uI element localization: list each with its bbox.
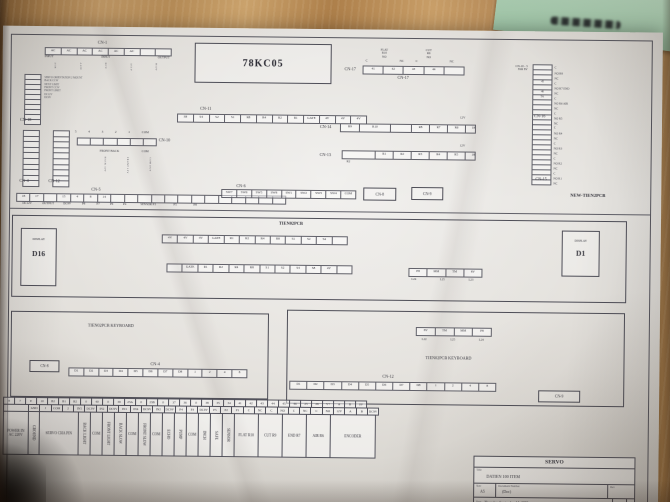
pin-cell	[337, 266, 351, 273]
pin-cell: S1	[260, 265, 275, 272]
pin-cell: COM	[341, 191, 355, 198]
pin-cell	[391, 125, 412, 132]
terminal-function-cell: AIR R6	[305, 414, 330, 458]
terminal-function-cell: ENCODER	[329, 414, 375, 458]
pin-cell: 42	[384, 67, 404, 74]
pin-cell: 4	[218, 370, 233, 377]
desk-photo: CN-1 ACACACACACAC INPUTINPUTOUTPUT ACBA1…	[0, 0, 670, 502]
cn8-box-label: CN-8	[376, 192, 384, 196]
pin-cell: AC	[124, 49, 140, 55]
size-label: Size	[476, 485, 481, 488]
lamp-tags: L24L25L23	[411, 278, 473, 282]
relay-pin-label: NC	[554, 151, 558, 155]
cn6-row: SW7SW6SW5SW8SW1SW2SW3SW4COM	[221, 189, 356, 199]
marker-smudge	[550, 16, 620, 29]
cn8-kb-box: CN-8	[29, 360, 59, 372]
terminal-function-cell: POWER IN AC 220V	[3, 411, 29, 455]
docnum-cell: Document Number (Doc)	[496, 484, 608, 498]
relay-pin-label: NO R1	[553, 176, 561, 180]
pin-cell: D7	[158, 369, 173, 376]
pin-cell: S2	[210, 115, 226, 122]
cn5-tag: DC12V	[16, 202, 38, 206]
pin-cell: R8	[241, 115, 257, 122]
cn13-sub-label: R2	[347, 160, 351, 163]
cn5-tags: DC12VOUTPUTDC9VP8P7P6P4SENSOR P3P5P8	[16, 202, 205, 207]
pin-cell: D4	[342, 382, 359, 389]
cn12-kb-label: CN-12	[382, 375, 393, 380]
cn4-kb-label: CN-4	[150, 362, 159, 367]
pin-cell	[125, 195, 139, 202]
pin-cell: S4	[317, 237, 332, 244]
board-name: NEW-TIEN2PCB	[570, 193, 605, 198]
relay-pin-label: C	[555, 65, 557, 69]
pin-cell: 4V	[322, 266, 337, 273]
keyboard-right-section: 8VTMMMP8 L22L25L24 TIEN02PCB KEYBOARD CN…	[286, 310, 625, 408]
cn15-label: CN-15	[535, 177, 546, 182]
display-d16-box: DISPLAY D16	[20, 228, 57, 286]
contact-c-label: C	[366, 59, 368, 62]
pin-cell: 17	[31, 194, 45, 201]
pin-cell: 8	[232, 370, 246, 377]
relay-pin-label: NO R6 AIR	[554, 101, 568, 105]
pin-cell: 18	[466, 153, 481, 160]
cn11-label: CN-11	[200, 107, 211, 112]
cn10-pin-numbers: 54321COM	[75, 129, 149, 134]
pin-cell	[332, 237, 346, 244]
title-block: SERVO Title DATIEN 100 ITEM Size A5 Docu…	[473, 456, 636, 502]
pin-cell: 2	[445, 383, 462, 390]
pin-cell: 4V	[335, 116, 351, 123]
cn8-connector-box: CN-8	[363, 187, 396, 200]
display-label: DISPLAY	[22, 237, 56, 241]
display-d1-box: DISPLAY D1	[561, 231, 599, 277]
pin-cell: R8	[412, 125, 430, 132]
pcb-title: TIEN02PCB	[279, 222, 303, 227]
section-divider	[10, 208, 650, 216]
pin-cell	[144, 139, 156, 145]
pin-cell: 8V	[464, 270, 481, 277]
pin-cell: D4	[114, 369, 129, 376]
pin-cell: D8	[410, 383, 427, 390]
pin-cell: SW3	[312, 191, 327, 198]
keyboard-title: TIEN02PCB KEYBOARD	[88, 324, 134, 329]
pin-cell	[117, 139, 130, 145]
cut-relay-label: CUTR6NO	[426, 49, 432, 59]
cn13-label: CN-13	[320, 153, 331, 158]
cn17-label-left: CN-17	[345, 67, 356, 72]
pin-cell: P8	[473, 329, 491, 336]
display-row-b: GATER1R2R4R8S1S2S4S84V	[166, 263, 352, 274]
cn11-row: S8S4S2S1R8R4R2R1GATE4V4V4V	[177, 114, 367, 125]
pin-cell: SW5	[252, 190, 267, 197]
pin-cell: R9	[341, 124, 360, 131]
front-back-wires: BACK 12VFRONT 12VCOM OUT	[103, 157, 151, 184]
pin-cell: AC	[77, 48, 93, 54]
pin-number: 4	[88, 130, 90, 134]
cn13-row: R1R2R3R4R518	[342, 150, 476, 160]
chip-box: 78KC05	[194, 43, 331, 84]
lamp-tag: L25	[440, 278, 445, 281]
relay-pin-label: C	[554, 81, 556, 85]
cn9-kb-box: CN-9	[538, 390, 580, 402]
pin-cell: R1	[198, 265, 213, 272]
pin-cell: R4	[430, 152, 448, 159]
cn12-table-label: CN-12	[48, 179, 59, 184]
pin-cell: 4V	[194, 236, 209, 243]
cn6-label: CN-6	[236, 184, 245, 189]
wire-pin-text: BACK 12V	[103, 157, 106, 183]
pin-cell	[444, 67, 463, 74]
pin-cell: TM	[446, 269, 464, 276]
display-row-a: 4V4V4VGATER1R2R4R8S1S2S4	[162, 234, 348, 245]
pin-cell: SW2	[297, 191, 312, 198]
pin-cell: 8	[479, 384, 495, 391]
pin-cell	[130, 139, 143, 145]
lamp-tag: L22	[422, 338, 427, 341]
pin-cell: GATE	[304, 116, 320, 123]
cn5-tag: P5	[165, 203, 185, 207]
pin-cell	[165, 195, 179, 202]
ssr-ref-label: CN-10 - 3SSR 8V	[496, 65, 528, 72]
relay-pin-label: C	[554, 156, 556, 160]
cn1-group-label: OUTPUT	[158, 56, 170, 60]
cn18-label: CN-18	[20, 118, 31, 123]
pin-cell: S4	[194, 115, 210, 122]
pin-cell: R1	[376, 152, 394, 159]
relay-pin-label: C	[554, 125, 556, 129]
pin-cell: R4	[255, 236, 270, 243]
pin-cell: 44	[424, 67, 444, 74]
pin-cell: 15	[58, 194, 72, 201]
pin-cell: D8	[173, 369, 188, 376]
title-label: Title	[476, 469, 481, 472]
note-line: DC9V	[44, 96, 82, 100]
pin-cell: D5	[129, 369, 144, 376]
pin-cell: 8	[84, 195, 98, 202]
pin-cell: SW4	[326, 191, 341, 198]
cn1-label: CN-1	[98, 41, 107, 46]
pin-cell: S1	[286, 237, 301, 244]
pin-cell: 18	[466, 126, 481, 133]
pin-cell: D6	[376, 383, 393, 390]
terminal-functions-row: POWER IN AC 220VGROUNDSERVO CHA PINBACK …	[4, 411, 404, 459]
lamp-tag: L25	[450, 338, 455, 341]
pin-cell: R5	[448, 152, 466, 159]
pin-cell	[343, 151, 376, 158]
cn10-row	[77, 137, 157, 146]
pin-cell	[104, 139, 117, 145]
terminal-function-cell: SERVO CHA PIN	[39, 411, 79, 455]
cn12-kb-row: D1D2D3D4D5D6D7D81248	[289, 381, 496, 392]
relay-pin-label: NC	[554, 91, 558, 95]
cn14-row: R9R10R8R7R618	[340, 123, 476, 133]
wire-pin-text: AC1V	[129, 63, 132, 85]
pin-number: COM	[142, 130, 149, 134]
pin-cell: D7	[393, 383, 410, 390]
pin-cell: R6	[448, 125, 466, 132]
terminal-function-cell: END R7	[281, 414, 306, 458]
pin-cell: D5	[359, 382, 376, 389]
pin-cell: R2	[273, 116, 289, 123]
pin-cell: R10	[360, 124, 391, 131]
relay-pin-label: NO R8	[555, 71, 563, 75]
relay-pin-label: NC	[554, 76, 558, 80]
rev-cell: Rev	[608, 485, 634, 498]
rev-label: Rev	[610, 486, 615, 489]
pin-cell: R2	[394, 152, 412, 159]
lamp-tag: L24	[479, 339, 484, 342]
pin-cell: MM	[454, 328, 473, 335]
pin-cell: R2	[214, 265, 229, 272]
terminal-table: 87E10B2B1B204003923A023B0373603835344142…	[4, 397, 405, 459]
relay-pin-label: NC	[554, 136, 558, 140]
contact-nc-label: NC	[400, 60, 404, 63]
display-id: D1	[563, 249, 599, 258]
cn4-kb-row: D1D2D3D4D5D6D7D81248	[68, 367, 247, 378]
cn1-group-label: INPUT	[45, 55, 54, 59]
cn17-label-below: CN-17	[397, 76, 408, 81]
cn1-group-labels: INPUTINPUTOUTPUT	[45, 55, 170, 60]
size-cell: Size A5	[474, 484, 496, 497]
cn4-table-label: CN-4	[19, 179, 28, 184]
wire-pin-text: BCV	[104, 63, 107, 85]
cn14-voltage-label: 12V	[460, 116, 465, 119]
pin-cell: S8	[306, 266, 321, 273]
relay-pin-label: C	[553, 171, 555, 175]
size-value: A5	[480, 490, 485, 494]
keyboard-title: TIEN02PCB KEYBOARD	[426, 356, 472, 361]
pin-cell: P8	[409, 269, 427, 276]
pin-cell: 4	[462, 384, 479, 391]
relay-pin-label: NC	[553, 181, 557, 185]
wire-pin-text: FRONT 12V	[126, 157, 129, 183]
docnum-label: Document Number	[498, 485, 520, 488]
pin-cell: S8	[178, 115, 194, 122]
cn5-tag: DC9V	[58, 202, 76, 206]
pin-cell: R3	[412, 152, 430, 159]
display-label: DISPLAY	[563, 239, 599, 243]
cn5-tag: OUTPUT	[38, 202, 58, 206]
label-line: NO	[426, 56, 432, 60]
flat-relay-label: FLATR10NO	[381, 49, 388, 59]
pin-cell: 4V	[163, 235, 178, 242]
pin-cell: 1	[188, 370, 203, 377]
cn5-tag: SENSOR P3	[131, 203, 165, 207]
cn5-tag: P4	[118, 203, 131, 207]
relay-pin-label: NC	[554, 166, 558, 170]
pin-cell	[206, 196, 220, 203]
drawing-frame: CN-1 ACACACACACAC INPUTINPUTOUTPUT ACBA1…	[6, 34, 653, 502]
cn1-group-label: INPUT	[101, 56, 110, 60]
pin-cell: SW6	[237, 190, 252, 197]
relay-pin-label: NC	[554, 106, 558, 110]
pin-cell: R8	[245, 265, 260, 272]
pin-cell: R7	[430, 125, 448, 132]
pin-cell: D3	[325, 382, 342, 389]
pin-cell: 43	[404, 67, 424, 74]
pin-cell: 4	[71, 194, 85, 201]
pin-cell: D6	[143, 369, 158, 376]
cn8-kb-label: CN-8	[40, 364, 48, 368]
lamp-tag: L24	[411, 278, 416, 281]
pin-cell	[91, 139, 104, 145]
relay-pin-label: NO R5	[554, 116, 562, 120]
title-block-title-row: Title DATIEN 100 ITEM	[474, 468, 634, 486]
pin-cell: 2	[203, 370, 218, 377]
pin-cell: R8	[271, 237, 286, 244]
lamp-tags: L22L25L24	[422, 338, 484, 342]
pin-number: 5	[75, 129, 77, 133]
relay-pin-label: NO R4	[554, 131, 562, 135]
wire-pin-text: B12V	[154, 63, 157, 85]
keyboard-left-section: TIEN02PCB KEYBOARD CN-8 CN-4 D1D2D3D4D5D…	[10, 311, 269, 400]
pin-cell: D3	[99, 369, 114, 376]
cn9-kb-label: CN-9	[555, 394, 563, 398]
cn9-connector-box: CN-9	[411, 187, 443, 200]
relay-pin-label: C	[554, 141, 556, 145]
pin-cell: 41	[364, 66, 384, 73]
com-label: COM	[142, 150, 149, 153]
title-block-date-row: Date Thursday, September 14, 2000 Sheet …	[474, 498, 634, 502]
contact-c-label: C	[416, 60, 418, 63]
drawing-title: DATIEN 100 ITEM	[486, 474, 520, 479]
pin-cell: GATE	[209, 236, 224, 243]
pin-cell: 1	[428, 383, 445, 390]
cn17-row: 41424344	[363, 65, 465, 75]
cn5-tag: P8	[76, 202, 91, 206]
pin-cell: R4	[229, 265, 244, 272]
pin-cell: S2	[275, 266, 290, 273]
lamp-tag: L23	[468, 279, 473, 282]
tien02pcb-section: TIEN02PCB DISPLAY D16 4V4V4VGATER1R2R4R8…	[11, 215, 627, 303]
label-line: SSR 8V	[496, 68, 528, 72]
display-id: D16	[22, 249, 56, 258]
schematic-paper: CN-1 ACACACACACAC INPUTINPUTOUTPUT ACBA1…	[0, 26, 663, 502]
docnum-value: (Doc)	[502, 490, 511, 494]
pin-cell: D2	[307, 382, 324, 389]
relay-pin-label: C	[554, 111, 556, 115]
front-back-label: FRONT BACK	[100, 150, 120, 154]
mini-row: 8VTMMMP8	[416, 327, 492, 337]
label-line: NO	[381, 56, 388, 60]
relay-pin-label: NO R3	[554, 146, 562, 150]
terminal-function-cell: CUT R9	[257, 413, 282, 457]
cn13-voltage-label: 12V	[460, 144, 465, 147]
pin-cell: S4	[291, 266, 306, 273]
cn16-label: CN-16	[534, 114, 545, 119]
pin-number: 3	[102, 130, 104, 134]
pin-cell	[111, 195, 125, 202]
pin-cell	[140, 49, 156, 55]
pin-cell: D2	[84, 369, 99, 376]
pin-cell	[78, 138, 91, 144]
cn9-box-label: CN-9	[423, 192, 431, 196]
cn5-tag: P8	[185, 204, 205, 208]
pin-cell: D1	[69, 368, 84, 375]
mini-row: P8MMTM8V	[408, 268, 482, 278]
pin-number: 1	[128, 130, 130, 134]
pin-cell: R1	[224, 236, 239, 243]
pin-cell: S1	[225, 115, 241, 122]
cn5-tag: P7	[91, 203, 105, 207]
pin-cell: 4V	[178, 236, 193, 243]
cn5-tag: P6	[105, 203, 118, 207]
pin-cell: 4V	[320, 116, 336, 123]
pin-cell: 8V	[417, 328, 436, 335]
pin-cell: SW7	[222, 190, 237, 197]
pin-cell: R2	[240, 236, 255, 243]
relay-pin-label: NO R2	[554, 161, 562, 165]
pin-number: 2	[115, 130, 117, 134]
wire-pin-text: COM OUT	[148, 157, 151, 183]
pin-cell: R1	[288, 116, 304, 123]
pin-cell: AC	[109, 49, 125, 55]
pin-cell: TM	[436, 328, 455, 335]
pin-cell: SW8	[267, 190, 282, 197]
relay-pin-label: C	[554, 96, 556, 100]
pin-cell: R4	[257, 115, 273, 122]
cn18-notes: SERVO ORIENTATION 2 MOUNTBACK CCWNEXT LI…	[44, 76, 82, 100]
terminal-function-cell: FLAT R10	[233, 413, 258, 457]
pin-cell: MM	[428, 269, 446, 276]
pin-cell	[179, 196, 193, 203]
relay-pin-label: NO R7 END	[554, 86, 569, 90]
cn10-label: CN-10	[159, 138, 170, 143]
pin-cell: D1	[290, 382, 307, 389]
pin-cell: GATE	[183, 265, 198, 272]
pin-cell	[167, 264, 182, 271]
chip-title: 78KC05	[243, 58, 284, 69]
pin-cell: AC	[61, 48, 77, 54]
cn5-label: CN-5	[91, 188, 100, 193]
pin-cell: SW1	[282, 191, 297, 198]
pin-cell: S2	[302, 237, 317, 244]
pin-cell: 18	[17, 194, 31, 201]
cn14-label: CN-14	[320, 125, 331, 130]
contact-nc-label: NC	[450, 60, 454, 63]
